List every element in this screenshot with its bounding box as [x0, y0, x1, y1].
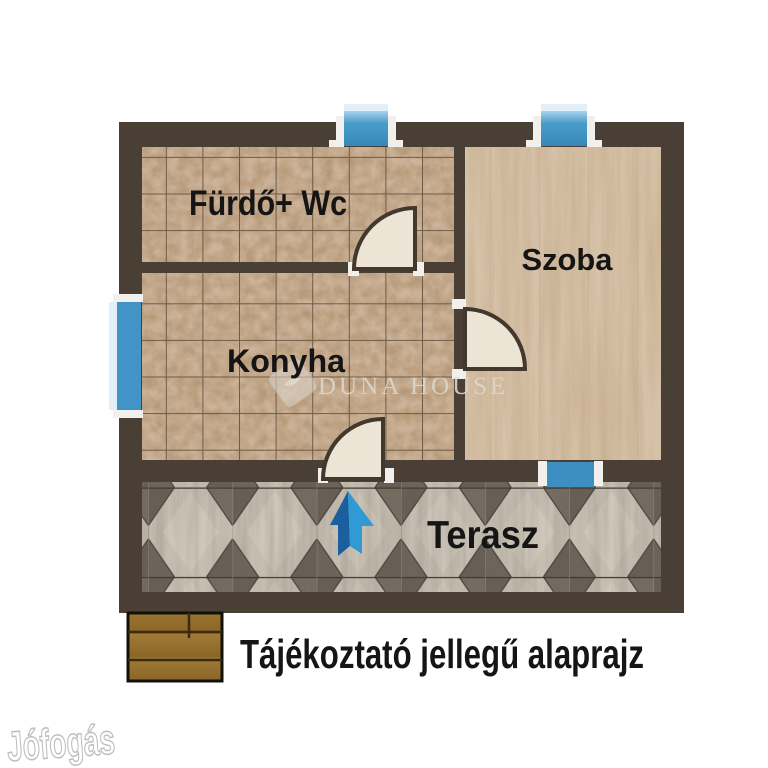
svg-text:Terasz: Terasz: [427, 514, 539, 557]
svg-text:Konyha: Konyha: [227, 343, 345, 379]
svg-text:Fürdő+ Wc: Fürdő+ Wc: [189, 184, 347, 223]
svg-text:Jófogás: Jófogás: [5, 716, 116, 768]
svg-text:Szoba: Szoba: [522, 242, 614, 277]
svg-text:Tájékoztató jellegű alaprajz: Tájékoztató jellegű alaprajz: [240, 631, 644, 677]
svg-text:DUNA HOUSE: DUNA HOUSE: [318, 373, 508, 400]
